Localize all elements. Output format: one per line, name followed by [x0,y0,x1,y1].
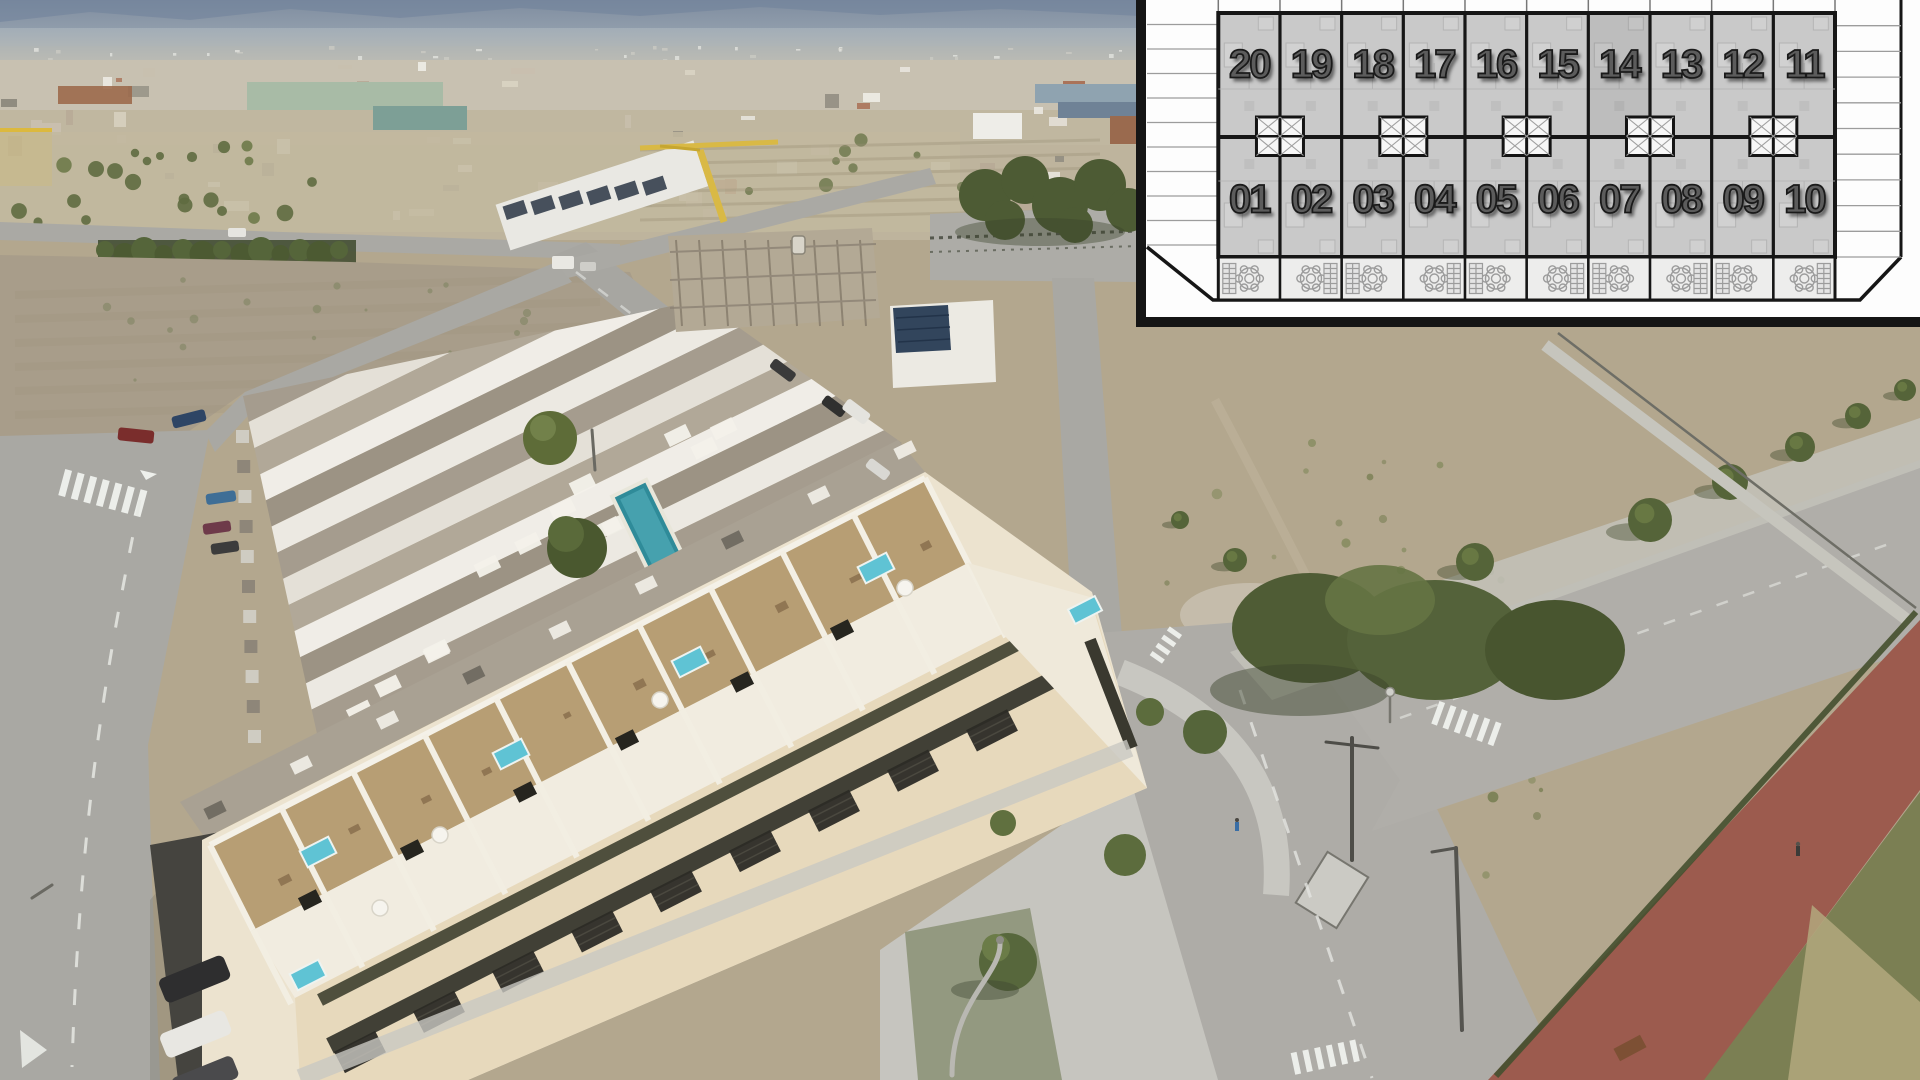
unit-number: 14 [1599,43,1640,88]
unit-number: 08 [1661,178,1702,223]
site-plan-overlay: 2001190218031704160515061407130812091110 [1136,0,1920,327]
unit-number: 15 [1537,43,1578,88]
unit-number: 01 [1229,178,1270,223]
unit-number: 18 [1352,43,1393,88]
parked-maroon-car [202,520,231,535]
unit-number: 09 [1722,178,1763,223]
unit-number: 12 [1722,43,1763,88]
unit-number: 03 [1352,178,1393,223]
pedestrian [1796,842,1800,856]
solar-roof-building [890,300,996,388]
industrial-building [1035,84,1140,103]
unit-number: 13 [1661,43,1702,88]
road-sign [1386,688,1395,697]
parked-blue-car [205,490,236,505]
unit-number: 16 [1476,43,1517,88]
palm-tree-crown [530,415,556,441]
unit-number: 02 [1291,178,1332,223]
plan-drawing-area: 2001190218031704160515061407130812091110 [1146,0,1920,317]
screenshot-root: 2001190218031704160515061407130812091110 [0,0,1920,1080]
unit-number: 10 [1784,178,1825,223]
unit-number: 06 [1537,178,1578,223]
water-tower [792,236,805,254]
brick-roof-row [58,86,132,104]
white-villa [973,113,1022,139]
warehouse [373,106,467,130]
unit-number: 04 [1414,178,1455,223]
industrial-building-2 [1058,102,1140,118]
small-car [580,262,596,271]
unit-number: 05 [1476,178,1517,223]
unit-number: 11 [1785,43,1823,88]
poolside-tree-highlight [548,516,584,552]
unit-number: 07 [1599,178,1640,223]
pedestrian-2 [1235,818,1239,831]
unit-number: 20 [1229,43,1270,88]
box-truck [552,256,574,269]
distant-car [228,228,246,237]
unit-number: 19 [1291,43,1332,88]
boundary-wall [236,430,261,743]
sports-field [247,82,443,110]
parked-dark-car [210,540,239,555]
unit-number: 17 [1414,43,1455,88]
